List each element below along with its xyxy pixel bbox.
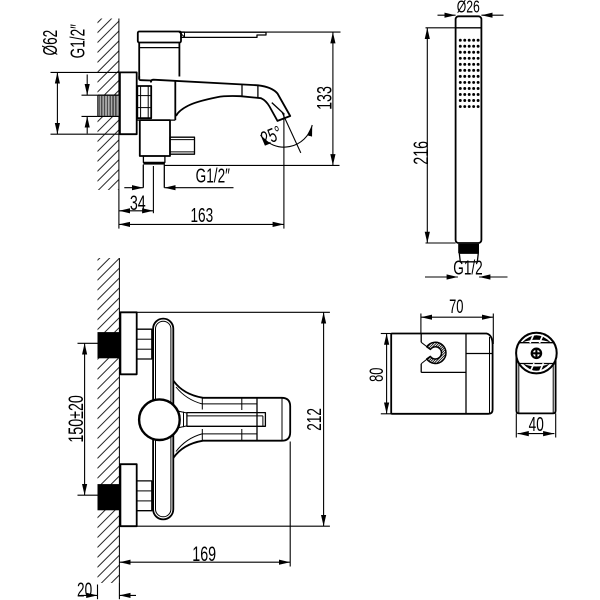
svg-text:80: 80 [367, 368, 388, 382]
svg-text:40: 40 [529, 414, 544, 436]
svg-text:Ø62: Ø62 [40, 30, 62, 56]
svg-text:133: 133 [313, 86, 336, 110]
svg-text:G1/2″: G1/2″ [67, 24, 89, 58]
svg-text:150±20: 150±20 [64, 395, 87, 443]
svg-text:G1/2″: G1/2″ [196, 165, 230, 187]
svg-text:G1/2: G1/2 [453, 257, 482, 279]
svg-text:212: 212 [303, 408, 325, 431]
svg-text:34: 34 [130, 191, 146, 214]
svg-text:Ø26: Ø26 [457, 0, 480, 17]
svg-text:70: 70 [449, 296, 463, 317]
svg-text:20: 20 [77, 579, 92, 600]
svg-text:163: 163 [190, 204, 213, 226]
svg-text:216: 216 [409, 141, 432, 165]
svg-text:169: 169 [192, 542, 216, 565]
